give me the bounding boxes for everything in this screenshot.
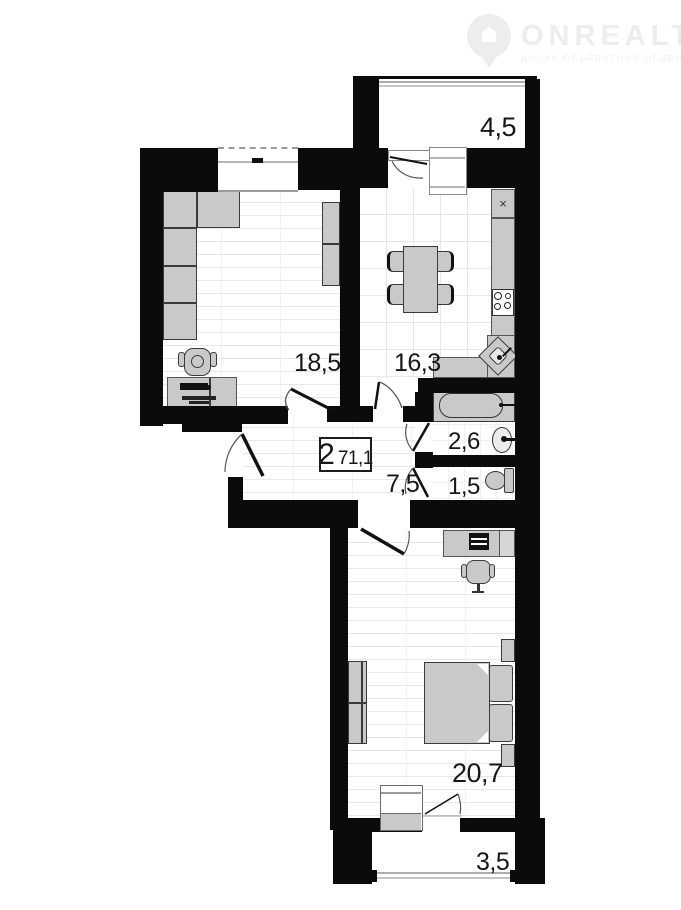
window-frame-line (430, 157, 465, 159)
brand-tagline: ДОСКА ОБЪЯВЛЕНИЙ НЕДВИЖИМОСТИ (521, 53, 681, 63)
wall-segment (182, 420, 242, 432)
wardrobe-divider-line (349, 702, 366, 704)
living-room-window (218, 147, 298, 192)
area-label-toilet: 1,5 (448, 473, 480, 501)
area-label-balcony-bottom: 3,5 (476, 848, 509, 877)
armchair-armrest (210, 352, 217, 367)
office-chair-stem (477, 584, 480, 591)
toilet-bowl (485, 471, 506, 490)
tv-stand-base (189, 401, 209, 404)
balcony-bottom-glazing (372, 877, 515, 879)
stove (492, 289, 514, 316)
glazing-end-cap (368, 870, 377, 882)
pin-tip (478, 52, 500, 68)
toilet-tank (504, 468, 514, 493)
wall-segment (415, 392, 433, 422)
wall-segment (353, 76, 537, 79)
onrealt-pin-icon (466, 14, 512, 70)
computer-line (471, 538, 487, 540)
window-frame-line (430, 186, 465, 188)
armchair-armrest (178, 352, 185, 367)
nightstand (501, 744, 515, 767)
console-divider-line (209, 378, 211, 407)
bedroom-window (380, 785, 423, 831)
dining-table (403, 246, 438, 313)
brand-name: ONREALT (521, 21, 681, 53)
sofa-top-section (163, 190, 240, 228)
wall-segment (525, 79, 540, 148)
wall-segment (330, 500, 348, 830)
balcony-top-glazing (379, 85, 525, 87)
armchair-seat-circle (191, 355, 204, 368)
balcony-top-glazing (379, 81, 525, 83)
computer-icon (469, 533, 489, 550)
x-mark-icon: × (499, 196, 507, 211)
wall-segment (410, 500, 540, 528)
window-tick (252, 158, 263, 163)
stove-burner (505, 293, 511, 299)
rooms-count: 2 (318, 440, 335, 470)
sofa-cushion-line (164, 265, 196, 267)
stove-burner (494, 292, 502, 300)
area-label-hallway: 7,5 (386, 470, 419, 499)
area-label-bedroom: 20,7 (452, 758, 503, 789)
glazing-end-cap (510, 870, 519, 882)
stove-burner (504, 302, 511, 309)
office-chair (466, 560, 491, 584)
nightstand (501, 639, 515, 662)
area-label-bathroom: 2,6 (448, 428, 480, 456)
dining-chair (387, 251, 404, 272)
office-chair-armrest (461, 564, 467, 578)
wall-segment (327, 406, 373, 422)
apartment-summary-box: 2 71,1 (319, 437, 372, 472)
wall-segment (415, 452, 433, 468)
office-chair-base (472, 591, 484, 593)
wall-segment (515, 148, 540, 818)
onrealt-watermark: ONREALT ДОСКА ОБЪЯВЛЕНИЙ НЕДВИЖИМОСТИ (466, 14, 681, 70)
basin-faucet (501, 436, 507, 442)
area-label-living-room: 18,5 (294, 349, 341, 378)
pillow (489, 704, 513, 742)
dining-chair (387, 284, 404, 305)
console-knob (206, 385, 211, 390)
wall-segment (358, 148, 388, 188)
wardrobe-divider-line (323, 243, 339, 245)
wall-segment (333, 818, 372, 884)
kitchen-door (375, 382, 402, 409)
floor-plan: ONREALT ДОСКА ОБЪЯВЛЕНИЙ НЕДВИЖИМОСТИ (0, 0, 681, 910)
stove-burner (494, 303, 501, 310)
tv-stand-bar (182, 396, 216, 400)
bathtub-faucet-line (503, 404, 515, 406)
tv-icon (180, 383, 208, 390)
office-chair-armrest (489, 564, 495, 578)
kitchen-sink-unit: × (491, 189, 515, 218)
bathtub-inner (439, 393, 503, 418)
wall-segment (460, 818, 517, 832)
pillow (489, 665, 513, 702)
window-sill (381, 813, 421, 830)
bed (424, 662, 490, 744)
wall-segment (418, 378, 540, 393)
wall-segment (340, 148, 360, 408)
computer-line (471, 543, 487, 545)
sofa-cushion-line (164, 302, 196, 304)
window-frame-line (381, 792, 421, 794)
watermark-text: ONREALT ДОСКА ОБЪЯВЛЕНИЙ НЕДВИЖИМОСТИ (521, 21, 681, 64)
sofa-side-section (163, 228, 197, 340)
wall-segment (353, 76, 379, 148)
area-label-kitchen: 16,3 (394, 349, 441, 378)
wall-segment (515, 818, 545, 884)
dining-chair (437, 251, 454, 272)
kitchen-window (429, 147, 467, 195)
total-area: 71,1 (338, 449, 373, 468)
balcony-door-frame (388, 150, 430, 161)
sofa-cushion-line (196, 191, 198, 228)
entrance-opening (228, 432, 243, 477)
desk-cabinet (499, 530, 515, 557)
dining-chair (437, 284, 454, 305)
sink-faucet (497, 355, 502, 360)
wall-segment (433, 455, 515, 467)
wall-segment (140, 148, 163, 426)
area-label-balcony-top: 4,5 (480, 112, 516, 143)
